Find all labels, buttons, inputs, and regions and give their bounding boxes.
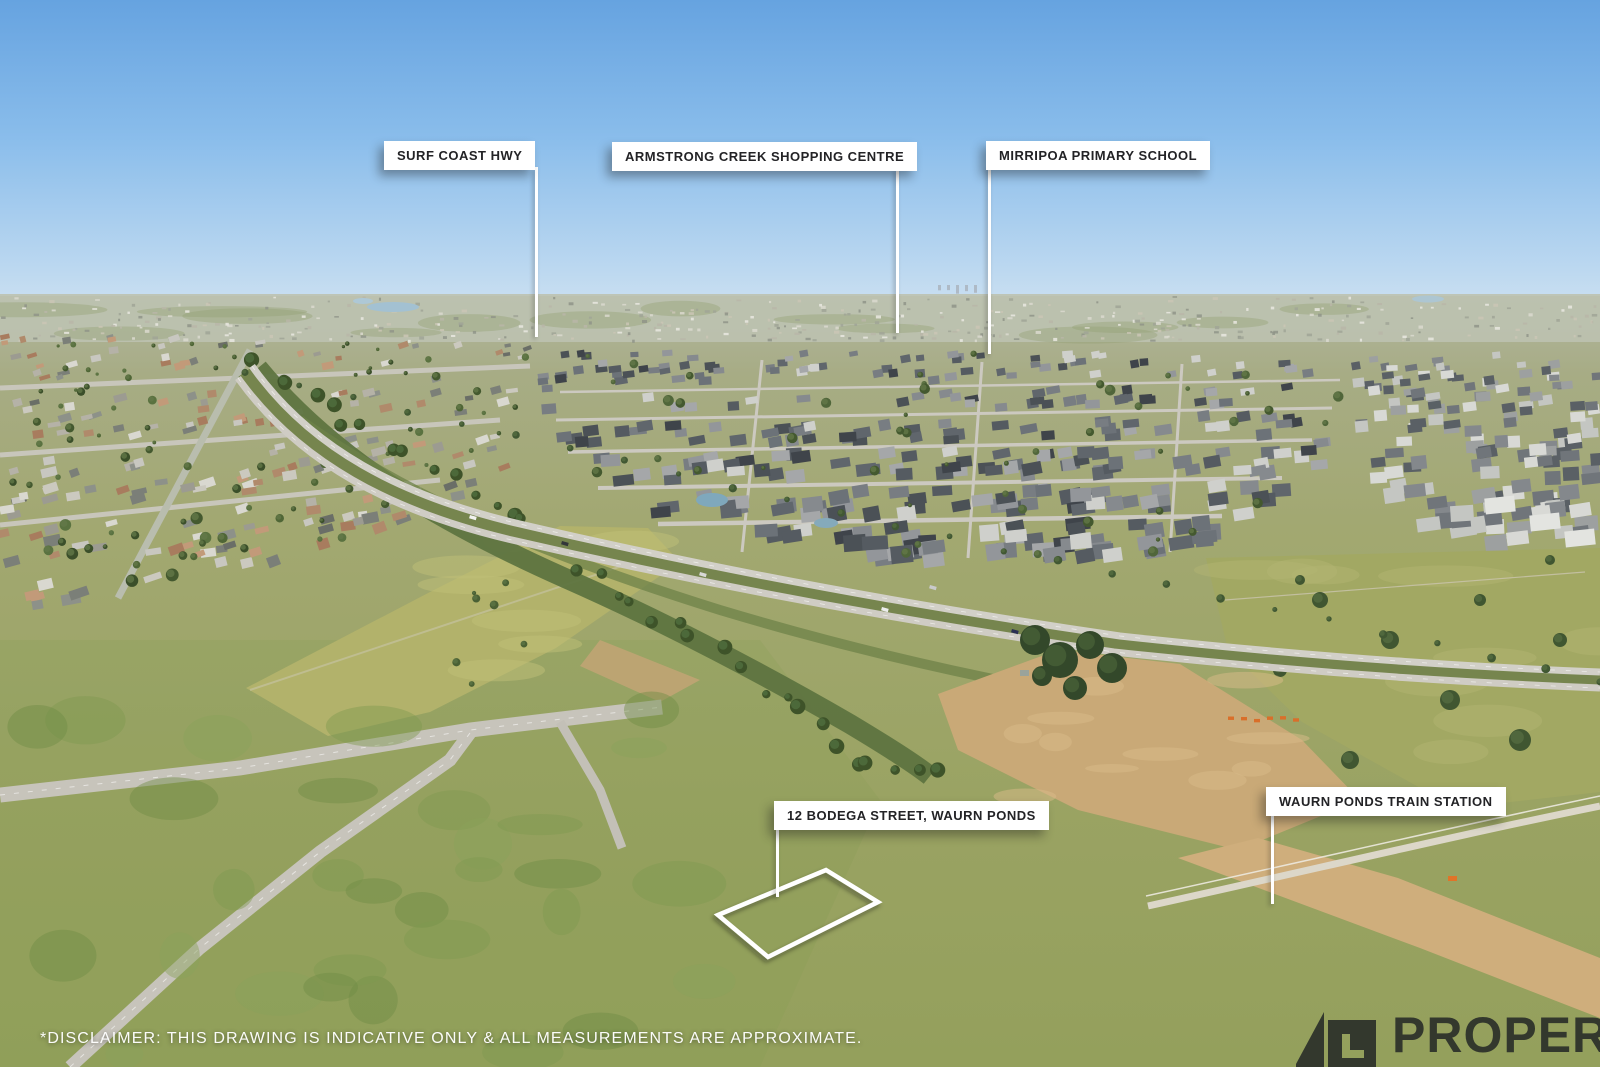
aerial-flyer: SURF COAST HWY ARMSTRONG CREEK SHOPPING … (0, 0, 1600, 1067)
watermark: PROPERTY (1294, 1004, 1600, 1067)
leader-line-train-station (1271, 815, 1274, 904)
callout-subject-property: 12 BODEGA STREET, WAURN PONDS (774, 801, 1049, 830)
leader-line-subject-property (776, 830, 779, 897)
leader-line-mirripoa (988, 167, 991, 354)
leader-line-armstrong-creek (896, 169, 899, 333)
watermark-logo-icon (1294, 1004, 1382, 1067)
watermark-text: PROPERTY (1392, 1004, 1600, 1060)
callout-train-station: WAURN PONDS TRAIN STATION (1266, 787, 1506, 816)
callout-armstrong-creek: ARMSTRONG CREEK SHOPPING CENTRE (612, 142, 917, 171)
leader-line-surf-coast-hwy (535, 167, 538, 337)
disclaimer-text: *DISCLAIMER: THIS DRAWING IS INDICATIVE … (40, 1030, 862, 1048)
callout-mirripoa-school: MIRRIPOA PRIMARY SCHOOL (986, 141, 1210, 170)
callout-surf-coast-hwy: SURF COAST HWY (384, 141, 535, 170)
